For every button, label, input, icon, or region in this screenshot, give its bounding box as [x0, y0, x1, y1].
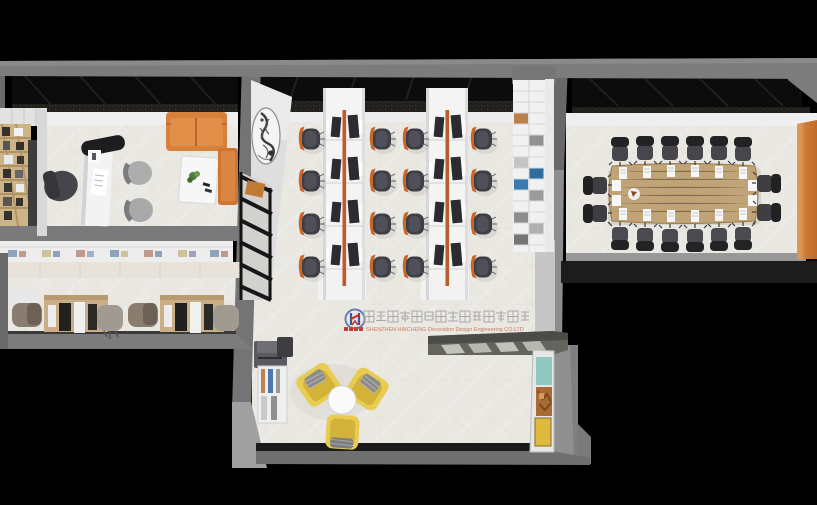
svg-text:SHENZHEN HAICHENG Decoration D: SHENZHEN HAICHENG Decoration Design Engi…: [366, 327, 524, 333]
